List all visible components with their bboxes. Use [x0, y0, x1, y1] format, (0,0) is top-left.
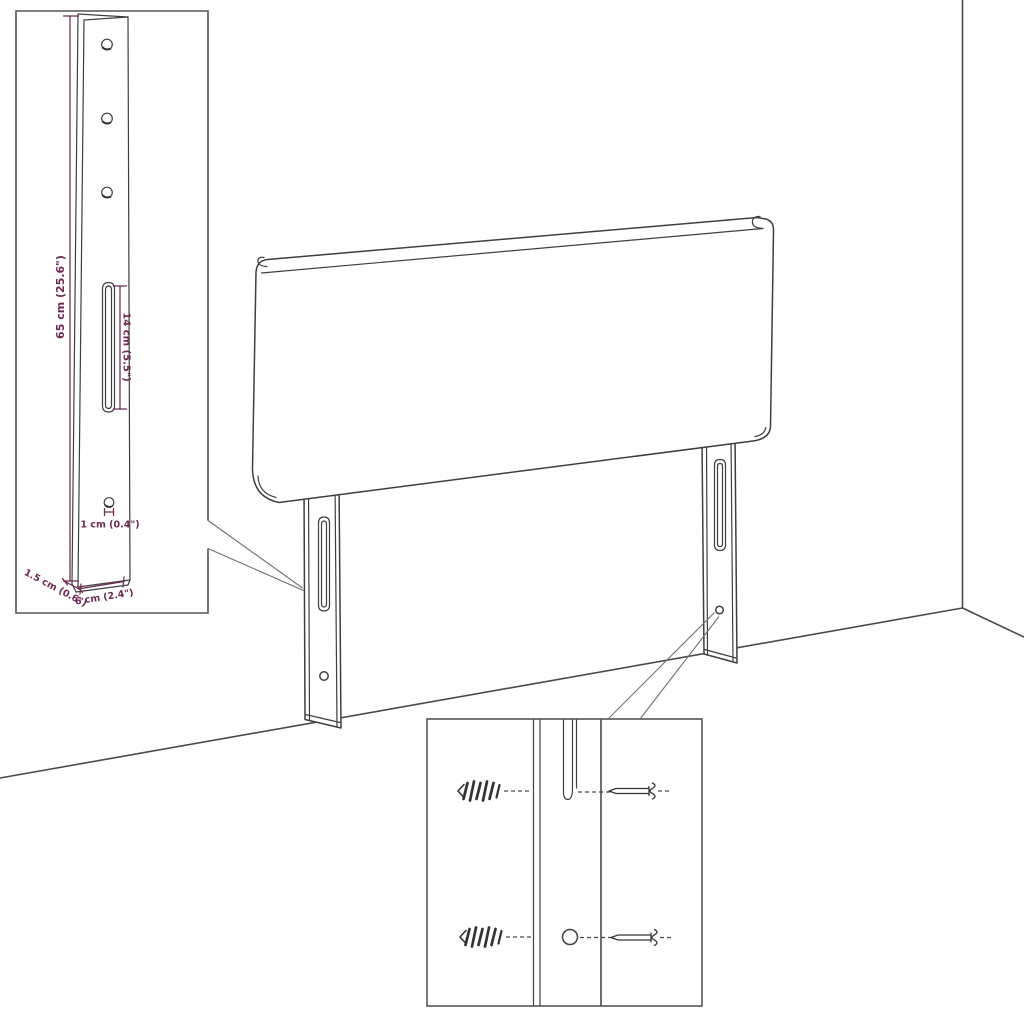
- floor-line-left: [0, 608, 963, 778]
- fixing-inset-leader-left: [608, 613, 715, 720]
- floor-line-right: [963, 608, 1024, 637]
- headboard-right-leg: [702, 435, 737, 663]
- dimension-label-hole: 1 cm (0.4"): [80, 520, 139, 531]
- wall-plug-top: [458, 782, 500, 801]
- wall-plug-bottom: [460, 928, 502, 947]
- fixing-inset-leg-strip: [534, 720, 602, 1005]
- leg-detail-inset: 65 cm (25.6") 14 cm (5.5") 1 cm (0.4") 1…: [16, 11, 208, 613]
- screw-bottom: [611, 930, 672, 946]
- bracket-small-hole: [104, 498, 114, 508]
- fixing-inset-slot: [564, 720, 573, 800]
- dimension-label-slot: 14 cm (5.5"): [121, 312, 132, 381]
- bracket-hole-2: [102, 113, 113, 124]
- fixing-inset-leader-right: [640, 617, 719, 720]
- diagram-canvas: 65 cm (25.6") 14 cm (5.5") 1 cm (0.4") 1…: [0, 0, 1024, 1024]
- headboard-panel: [253, 216, 774, 502]
- fixing-inset-frame: [427, 719, 702, 1006]
- headboard-left-leg: [304, 480, 341, 728]
- callout-leader-lines: [208, 521, 719, 720]
- screw-top: [609, 783, 671, 799]
- bracket-slot-inner: [106, 286, 112, 409]
- bracket-hole-3: [102, 187, 113, 198]
- dimension-label-height: 65 cm (25.6"): [54, 255, 67, 339]
- product-diagram-page: 65 cm (25.6") 14 cm (5.5") 1 cm (0.4") 1…: [0, 0, 1024, 1024]
- fixing-inset-hole: [563, 930, 578, 945]
- bracket-slot-outer: [103, 283, 115, 413]
- headboard-panel-face: [253, 218, 774, 503]
- fixing-detail-inset: [427, 719, 702, 1006]
- bracket-hole-1: [102, 39, 113, 50]
- leg-inset-bracket: [72, 14, 130, 592]
